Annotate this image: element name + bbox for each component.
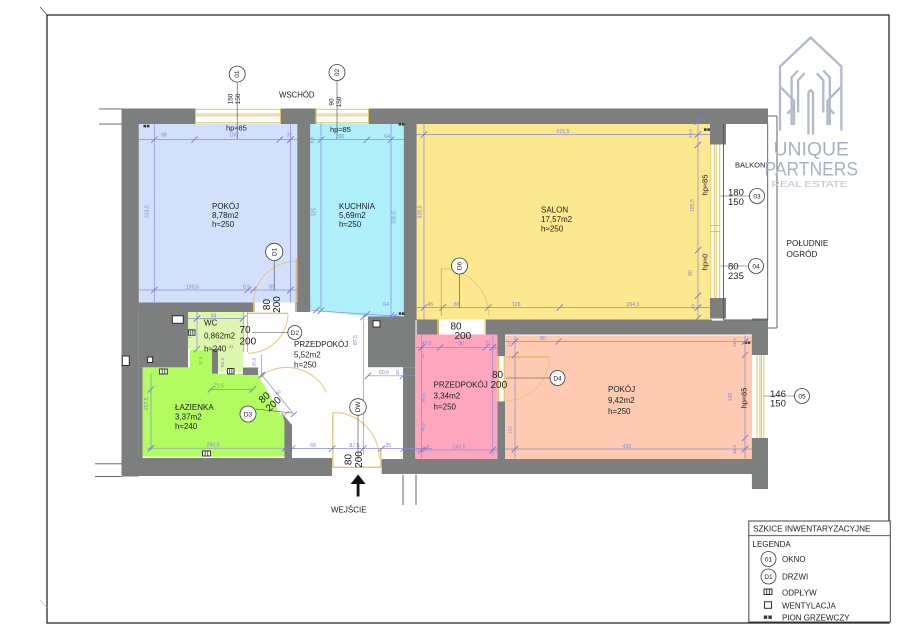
svg-text:h≈250: h≈250 <box>339 220 362 229</box>
svg-text:200: 200 <box>491 380 508 391</box>
svg-text:D4: D4 <box>553 375 562 382</box>
svg-text:90: 90 <box>339 134 345 140</box>
svg-text:515,5: 515,5 <box>557 129 570 135</box>
svg-text:DW: DW <box>355 401 362 413</box>
svg-text:05: 05 <box>798 393 806 400</box>
svg-text:74: 74 <box>421 354 426 360</box>
svg-text:hp≈0: hp≈0 <box>701 254 710 271</box>
svg-text:150: 150 <box>728 197 744 208</box>
svg-text:336,5: 336,5 <box>391 211 397 224</box>
svg-text:POŁUDNIE: POŁUDNIE <box>787 239 829 248</box>
svg-text:126: 126 <box>512 302 521 308</box>
svg-text:21: 21 <box>485 341 491 347</box>
svg-text:LEGENDA: LEGENDA <box>753 540 792 549</box>
svg-text:h=250: h=250 <box>294 361 317 370</box>
svg-text:h=250: h=250 <box>434 403 457 412</box>
svg-text:87,5: 87,5 <box>353 335 359 345</box>
svg-text:8,78m2: 8,78m2 <box>212 211 239 220</box>
svg-text:80: 80 <box>540 336 546 342</box>
svg-text:64: 64 <box>384 134 390 140</box>
svg-text:69: 69 <box>310 443 316 449</box>
svg-text:PRZEDPOKÓJ: PRZEDPOKÓJ <box>434 381 488 390</box>
svg-text:190,5: 190,5 <box>186 284 199 290</box>
svg-text:D2: D2 <box>291 330 300 337</box>
svg-text:ŁAZIENKA: ŁAZIENKA <box>175 403 214 412</box>
svg-text:D1: D1 <box>271 247 278 256</box>
svg-text:hp≈85: hp≈85 <box>740 388 749 409</box>
svg-text:5,69m2: 5,69m2 <box>339 211 366 220</box>
svg-text:hp≈85: hp≈85 <box>226 124 247 133</box>
svg-text:310,5: 310,5 <box>145 205 151 218</box>
svg-text:,35: ,35 <box>384 443 391 449</box>
svg-text:SALON: SALON <box>541 206 568 215</box>
svg-text:WC: WC <box>204 319 218 328</box>
svg-text:WSCHÓD: WSCHÓD <box>279 91 315 100</box>
svg-text:36,5: 36,5 <box>732 338 737 347</box>
svg-text:PARTNERS: PARTNERS <box>765 160 859 181</box>
svg-text:264,5: 264,5 <box>627 302 640 308</box>
svg-text:80: 80 <box>688 270 694 276</box>
svg-text:40: 40 <box>691 304 696 310</box>
svg-text:04: 04 <box>752 263 760 270</box>
svg-text:60,5: 60,5 <box>379 370 389 376</box>
svg-text:157,5: 157,5 <box>144 397 150 410</box>
svg-text:3,37m2: 3,37m2 <box>175 413 202 422</box>
svg-text:235: 235 <box>728 271 744 282</box>
svg-text:200: 200 <box>455 331 472 342</box>
svg-text:37: 37 <box>508 342 513 348</box>
svg-text:OGRÓD: OGRÓD <box>787 249 818 259</box>
svg-text:ODPŁYW: ODPŁYW <box>782 589 817 598</box>
svg-text:17,57m2: 17,57m2 <box>541 215 573 224</box>
svg-text:42,5: 42,5 <box>421 341 431 347</box>
svg-text:WEJŚCIE: WEJŚCIE <box>331 506 367 515</box>
svg-text:POKÓJ: POKÓJ <box>608 385 635 394</box>
svg-text:45: 45 <box>428 302 434 308</box>
svg-text:150: 150 <box>770 399 786 410</box>
svg-text:BALKON: BALKON <box>735 161 765 170</box>
svg-text:37: 37 <box>492 344 497 350</box>
svg-text:77,5: 77,5 <box>189 330 194 339</box>
svg-text:hp≈85: hp≈85 <box>330 125 351 134</box>
svg-text:9,5: 9,5 <box>243 284 250 290</box>
svg-text:POKÓJ: POKÓJ <box>212 202 239 211</box>
svg-text:REAL ESTATE: REAL ESTATE <box>772 180 848 189</box>
svg-text:32: 32 <box>286 132 292 138</box>
svg-text:D6: D6 <box>457 261 464 270</box>
svg-text:72,5: 72,5 <box>214 384 224 390</box>
svg-text:250,5: 250,5 <box>207 442 220 448</box>
svg-text:h≈240: h≈240 <box>204 345 227 354</box>
svg-text:3,34m2: 3,34m2 <box>434 392 461 401</box>
svg-text:200: 200 <box>272 296 283 313</box>
svg-text:OKNO: OKNO <box>782 555 806 564</box>
svg-text:UNIQUE: UNIQUE <box>774 139 850 160</box>
svg-text:D1: D1 <box>764 574 773 581</box>
svg-text:02: 02 <box>334 69 341 77</box>
svg-text:01: 01 <box>765 556 773 563</box>
svg-text:325: 325 <box>312 208 318 217</box>
svg-text:80: 80 <box>454 302 460 308</box>
svg-text:SZKICE INWENTARYZACYJNE: SZKICE INWENTARYZACYJNE <box>753 525 871 534</box>
svg-text:102: 102 <box>508 426 513 434</box>
svg-text:h≈250: h≈250 <box>212 220 235 229</box>
svg-text:200: 200 <box>240 337 257 348</box>
svg-text:41: 41 <box>228 344 234 349</box>
svg-text:338,5: 338,5 <box>417 205 423 218</box>
svg-text:64: 64 <box>383 302 389 308</box>
svg-text:48,5: 48,5 <box>421 422 426 431</box>
svg-text:90: 90 <box>329 98 336 106</box>
svg-text:150: 150 <box>229 132 238 138</box>
svg-text:01: 01 <box>234 70 241 78</box>
svg-text:h≈250: h≈250 <box>541 225 564 234</box>
svg-text:36,5: 36,5 <box>732 445 737 454</box>
svg-text:DRZWI: DRZWI <box>782 573 808 582</box>
svg-text:D3: D3 <box>244 411 253 418</box>
svg-text:R2,5: R2,5 <box>220 357 225 367</box>
svg-text:PRZEDPOKÓJ: PRZEDPOKÓJ <box>294 340 348 349</box>
svg-text:03: 03 <box>753 193 761 200</box>
svg-text:150: 150 <box>235 93 242 104</box>
svg-text:5,52m2: 5,52m2 <box>294 351 321 360</box>
svg-text:h≈240: h≈240 <box>175 422 198 431</box>
svg-text:200: 200 <box>354 451 365 468</box>
svg-text:140: 140 <box>728 393 734 402</box>
svg-text:35,5: 35,5 <box>252 357 257 366</box>
svg-text:185,5: 185,5 <box>690 199 696 212</box>
svg-text:0,862m2: 0,862m2 <box>204 332 236 341</box>
svg-text:90,3: 90,3 <box>421 393 426 402</box>
svg-text:32,5: 32,5 <box>198 356 203 365</box>
svg-text:h=250: h=250 <box>608 407 631 416</box>
svg-text:38,5: 38,5 <box>688 129 693 138</box>
svg-text:9,42m2: 9,42m2 <box>608 396 635 405</box>
svg-text:143,5: 143,5 <box>453 445 466 451</box>
svg-text:8,5: 8,5 <box>310 136 315 143</box>
svg-text:KUCHNIA: KUCHNIA <box>339 202 376 211</box>
svg-text:30: 30 <box>395 370 400 375</box>
svg-text:70: 70 <box>240 325 252 336</box>
svg-text:hp≈85: hp≈85 <box>701 175 710 196</box>
svg-text:WENTYLACJA: WENTYLACJA <box>782 602 836 611</box>
svg-text:150: 150 <box>228 93 235 104</box>
svg-text:98: 98 <box>161 132 167 138</box>
svg-text:PION GRZEWCZY: PION GRZEWCZY <box>782 613 850 622</box>
svg-text:430: 430 <box>623 444 632 450</box>
